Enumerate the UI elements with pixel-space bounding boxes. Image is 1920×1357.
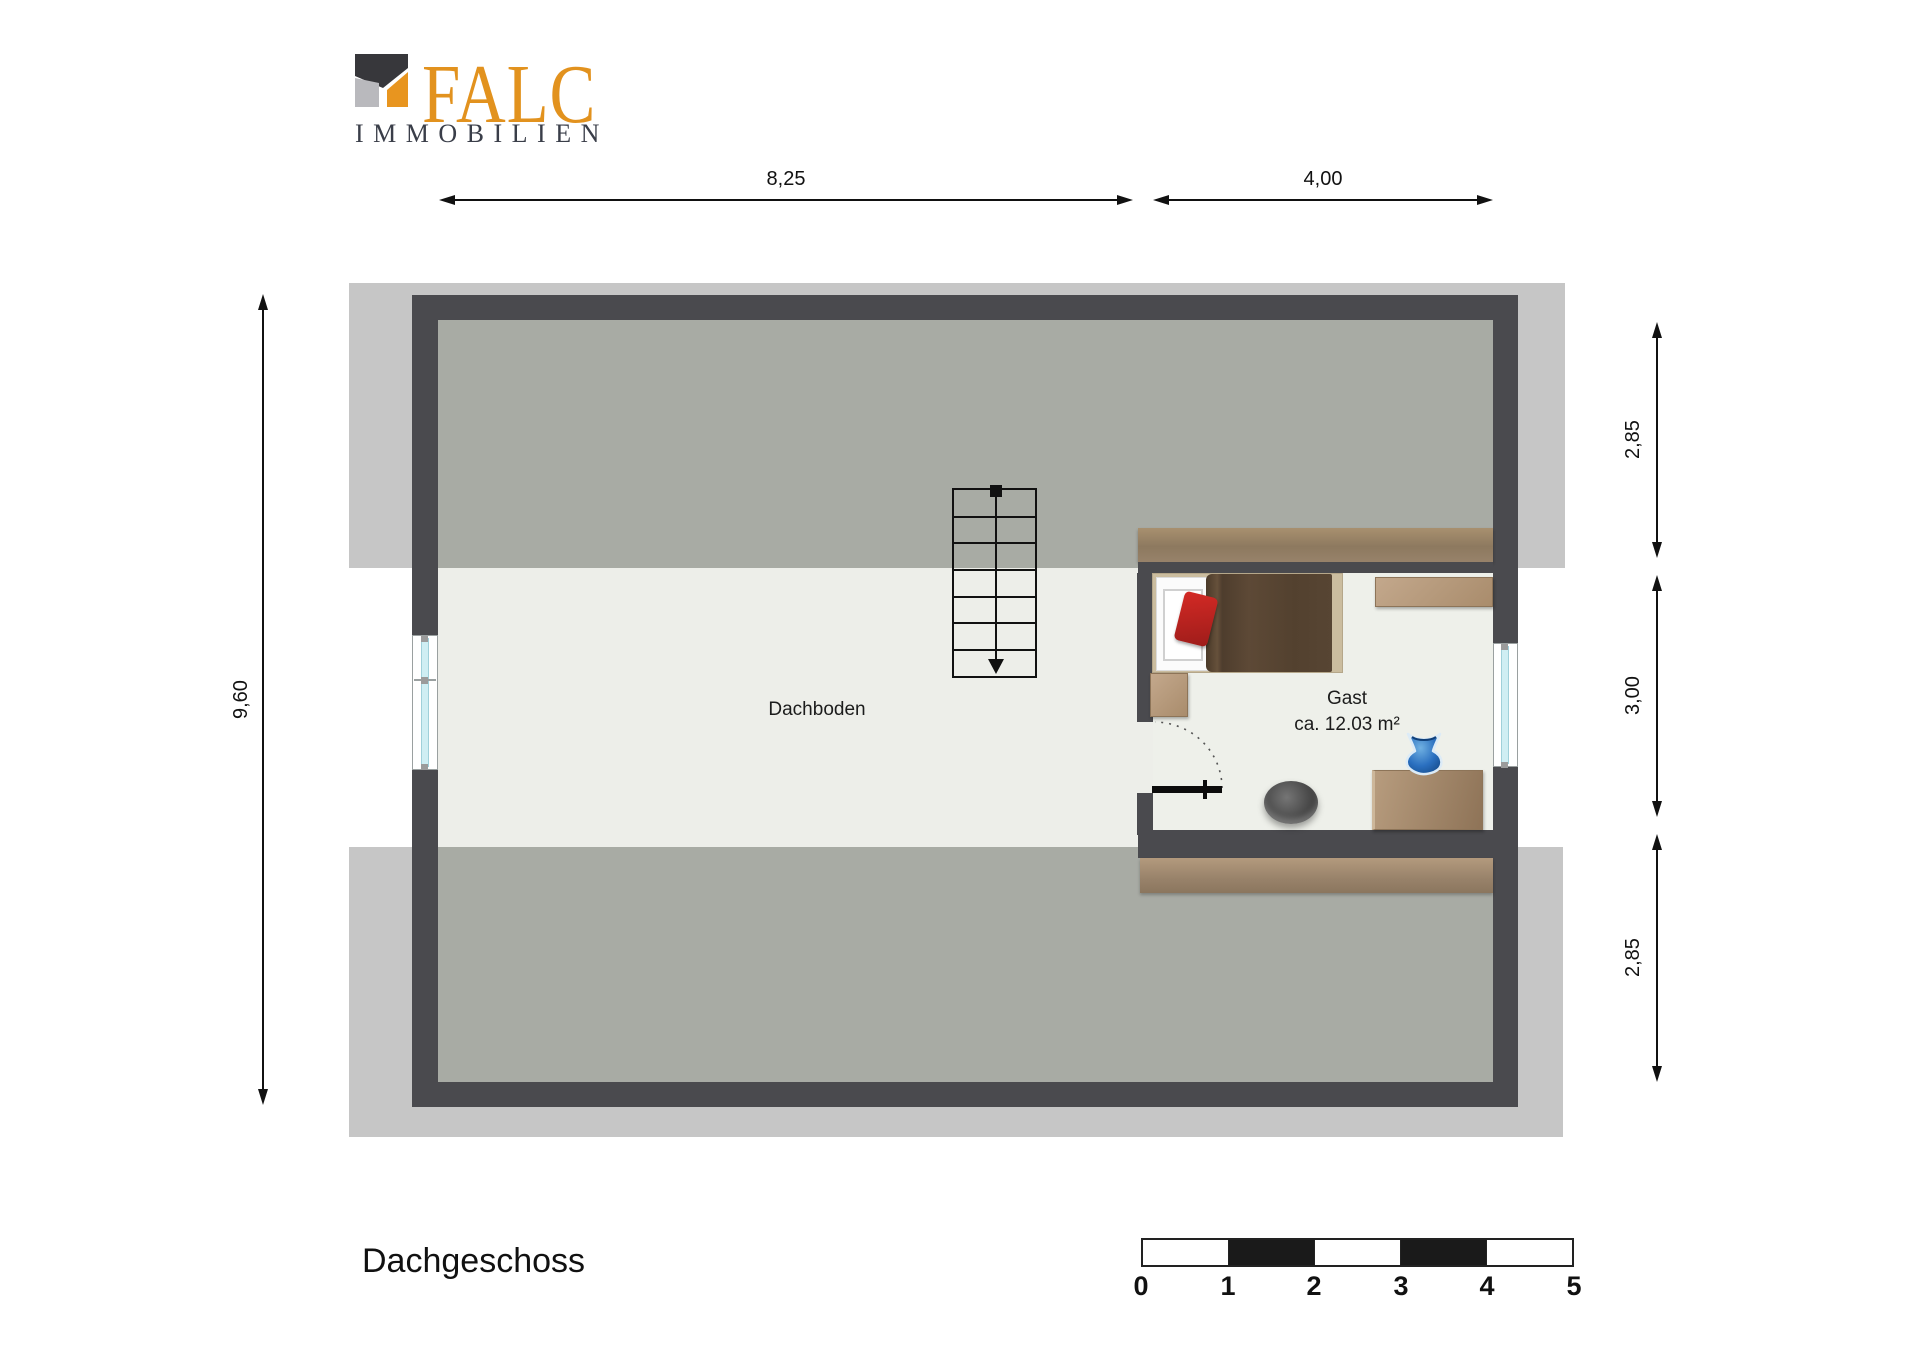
room-label-gast: Gast [1247, 688, 1447, 710]
dim-right-2-85-bottom-label: 2,85 [1620, 834, 1646, 1082]
window-right [1493, 643, 1518, 767]
wardrobe-shelf [1375, 577, 1493, 607]
dim-top-8-25-label: 8,25 [439, 168, 1133, 190]
scale-tick-label: 4 [1465, 1271, 1509, 1302]
scale-bar-segment [1486, 1240, 1572, 1265]
window-right-glass [1501, 646, 1509, 764]
dim-right-2-85-top-label: 2,85 [1620, 322, 1646, 558]
dim-top-4-00-label: 4,00 [1153, 168, 1493, 190]
window-joint [1501, 644, 1508, 650]
door-leaf [1152, 786, 1222, 793]
dim-right-2-85-bottom-arrow [1649, 834, 1665, 1082]
gast-top-wall [1138, 562, 1493, 573]
scale-tick-label: 5 [1552, 1271, 1596, 1302]
room-label-dachboden: Dachboden [717, 699, 917, 721]
nightstand [1150, 673, 1188, 717]
dim-top-4-00-arrow [1153, 192, 1493, 208]
plant-pot [1264, 781, 1318, 824]
window-joint [421, 636, 428, 642]
scale-tick-label: 1 [1206, 1271, 1250, 1302]
gast-top-closet [1138, 528, 1493, 562]
desk [1372, 770, 1483, 830]
window-joint [421, 764, 428, 770]
bed [1152, 573, 1343, 673]
dim-left-9-60-label: 9,60 [228, 294, 254, 1105]
dim-right-2-85-top-arrow [1649, 322, 1665, 558]
falc-logo-icon [355, 53, 408, 108]
staircase [950, 483, 1042, 683]
dim-left-9-60-arrow [255, 294, 271, 1105]
scale-bar [1141, 1238, 1574, 1267]
scale-bar-segment [1229, 1240, 1314, 1265]
scale-tick-label: 3 [1379, 1271, 1423, 1302]
window-joint [421, 677, 428, 684]
falc-logo: FALC IMMOBILIEN [355, 53, 775, 148]
bed-blanket [1206, 574, 1332, 672]
scale-bar-segment [1314, 1240, 1401, 1265]
scale-tick-label: 0 [1119, 1271, 1163, 1302]
scale-tick-label: 2 [1292, 1271, 1336, 1302]
room-area-gast: ca. 12.03 m² [1247, 714, 1447, 736]
dim-top-8-25-arrow [439, 192, 1133, 208]
window-joint [1501, 762, 1508, 768]
gast-bottom-wall [1138, 830, 1493, 858]
dim-right-3-00-label: 3,00 [1620, 575, 1646, 817]
dim-right-3-00-arrow [1649, 575, 1665, 817]
gast-bottom-closet [1140, 858, 1493, 893]
door-handle-tick [1203, 780, 1207, 799]
scale-bar-segment [1143, 1240, 1229, 1265]
floorplan-page: FALC IMMOBILIEN 8,25 4,00 9,60 2,85 3,00… [0, 0, 1920, 1357]
window-left-glass [421, 638, 429, 767]
window-left [412, 635, 438, 770]
falc-subtitle-text: IMMOBILIEN [355, 121, 609, 147]
scale-bar-segment [1401, 1240, 1486, 1265]
floor-title: Dachgeschoss [362, 1242, 585, 1281]
stair-direction-arrow [988, 485, 1004, 674]
